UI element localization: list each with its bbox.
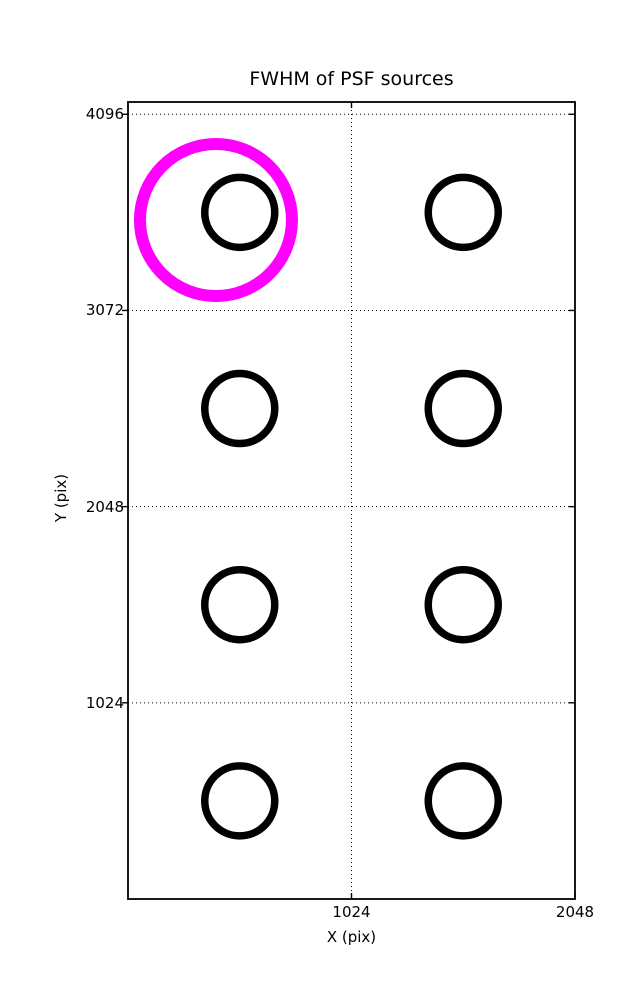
y-tick-label-2048: 2048 (0, 498, 124, 516)
psf-source-circle-0 (205, 177, 275, 247)
psf-source-circle-6 (205, 766, 275, 836)
y-tick-label-1024: 1024 (0, 694, 124, 712)
psf-source-circle-1 (428, 177, 498, 247)
y-tick-label-3072: 3072 (0, 301, 124, 319)
axes-box (128, 102, 575, 899)
psf-source-circle-5 (428, 570, 498, 640)
x-tick-label-1024: 1024 (312, 903, 392, 921)
psf-source-circle-2 (205, 374, 275, 444)
psf-source-circle-4 (205, 570, 275, 640)
highlight-circle (140, 144, 292, 296)
x-axis-label: X (pix) (128, 928, 575, 946)
x-tick-label-2048: 2048 (535, 903, 615, 921)
chart-title: FWHM of PSF sources (128, 68, 575, 91)
psf-source-circle-3 (428, 374, 498, 444)
y-tick-label-4096: 4096 (0, 105, 124, 123)
figure: FWHM of PSF sources X (pix) Y (pix) 1024… (0, 0, 637, 1000)
psf-source-circle-7 (428, 766, 498, 836)
